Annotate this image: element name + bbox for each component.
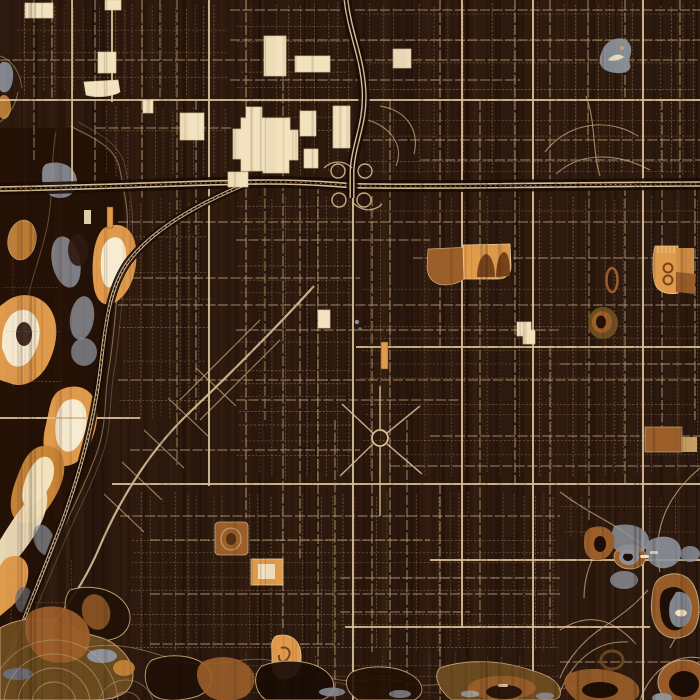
map-canvas	[0, 0, 700, 700]
map-print	[0, 0, 700, 700]
